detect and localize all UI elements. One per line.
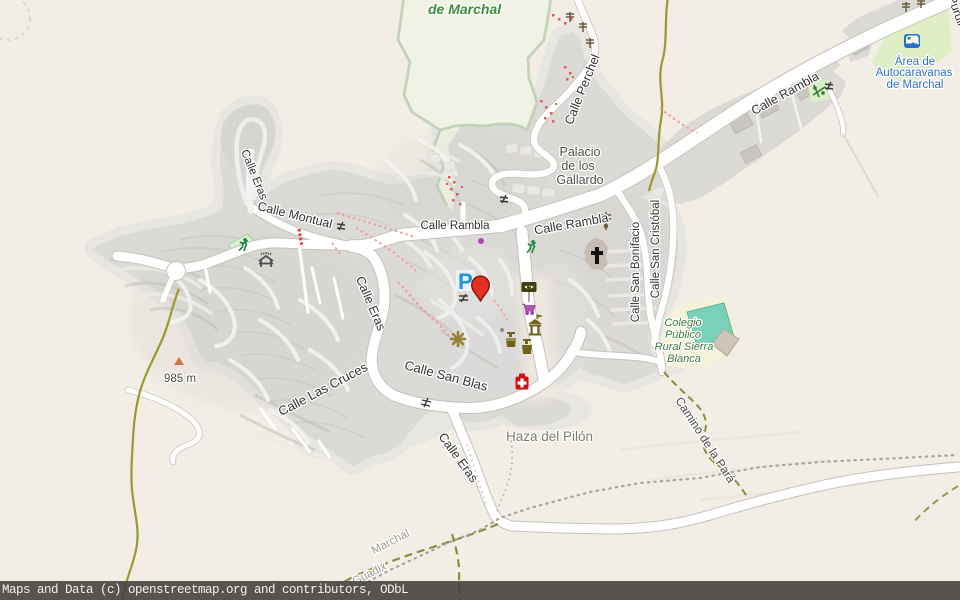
svg-text:Colegio: Colegio xyxy=(664,317,701,329)
svg-text:Haza del Pilón: Haza del Pilón xyxy=(506,429,593,444)
svg-text:de Marchal: de Marchal xyxy=(428,1,502,17)
svg-text:Público: Público xyxy=(665,329,701,341)
svg-text:Calle San Cristóbal: Calle San Cristóbal xyxy=(650,200,662,298)
svg-text:Autocaravanas: Autocaravanas xyxy=(876,67,953,79)
svg-text:de los: de los xyxy=(561,159,594,173)
svg-text:de Marchal: de Marchal xyxy=(887,79,944,91)
svg-text:Calle Rambla: Calle Rambla xyxy=(420,220,490,232)
svg-text:P: P xyxy=(458,269,473,294)
svg-text:Calle San Bonifacio: Calle San Bonifacio xyxy=(630,222,642,322)
svg-text:Blanca: Blanca xyxy=(667,353,701,365)
svg-text:Gallardo: Gallardo xyxy=(556,173,603,187)
svg-text:985 m: 985 m xyxy=(164,373,196,385)
svg-text:Palacio: Palacio xyxy=(560,145,601,159)
svg-text:Rural Sierra: Rural Sierra xyxy=(655,341,714,353)
